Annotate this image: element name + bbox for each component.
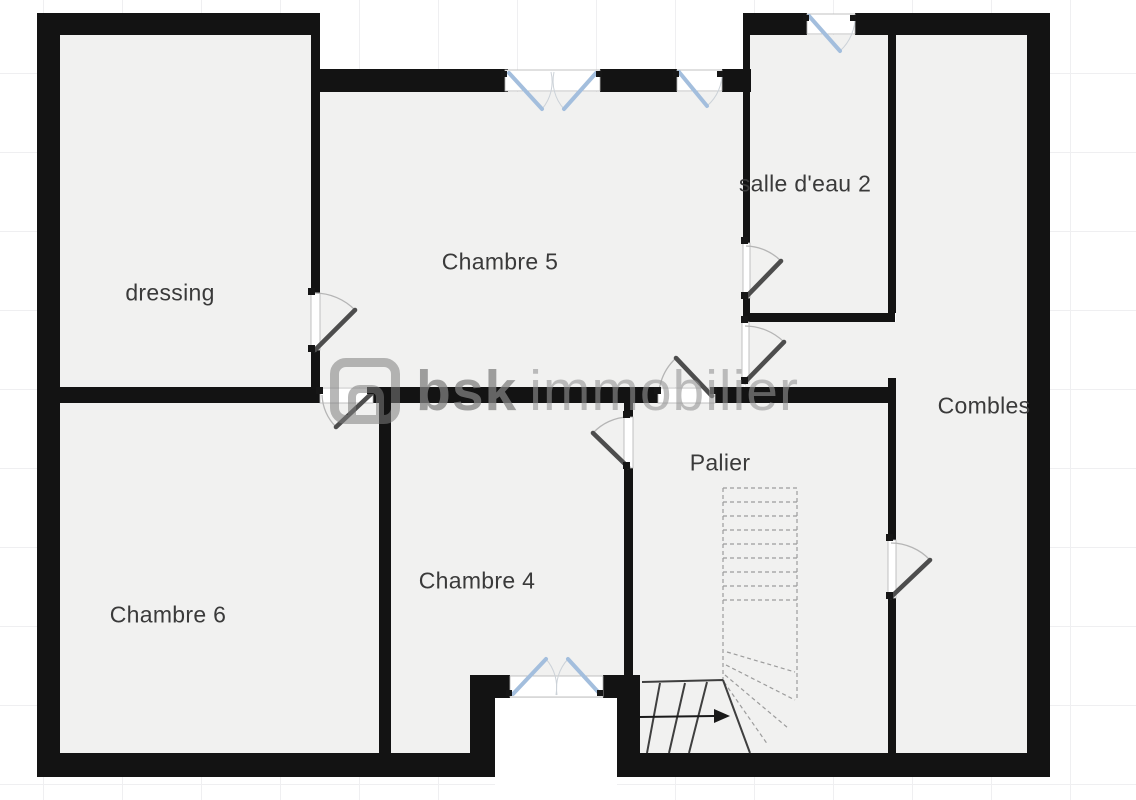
door-chambre4 [593,433,628,467]
label-palier: Palier [690,450,751,477]
stairs-direction-arrow [640,716,714,717]
label-chambre4: Chambre 4 [419,568,535,595]
door-dressing [315,310,355,350]
door-passage [745,342,784,382]
label-chambre6: Chambre 6 [110,602,226,629]
jamb-dots [308,15,893,696]
label-chambre5: Chambre 5 [442,249,558,276]
floor-plan: dressing Chambre 5 salle d'eau 2 Combles… [0,0,1136,800]
door-combles [891,560,930,597]
label-salle-deau-2: salle d'eau 2 [739,171,871,198]
door-openings [311,14,896,697]
door-swings [315,246,930,597]
label-combles: Combles [938,393,1031,420]
stairs [640,488,797,753]
door-salle-deau [746,261,781,297]
windows [509,15,855,695]
label-dressing: dressing [125,280,214,307]
